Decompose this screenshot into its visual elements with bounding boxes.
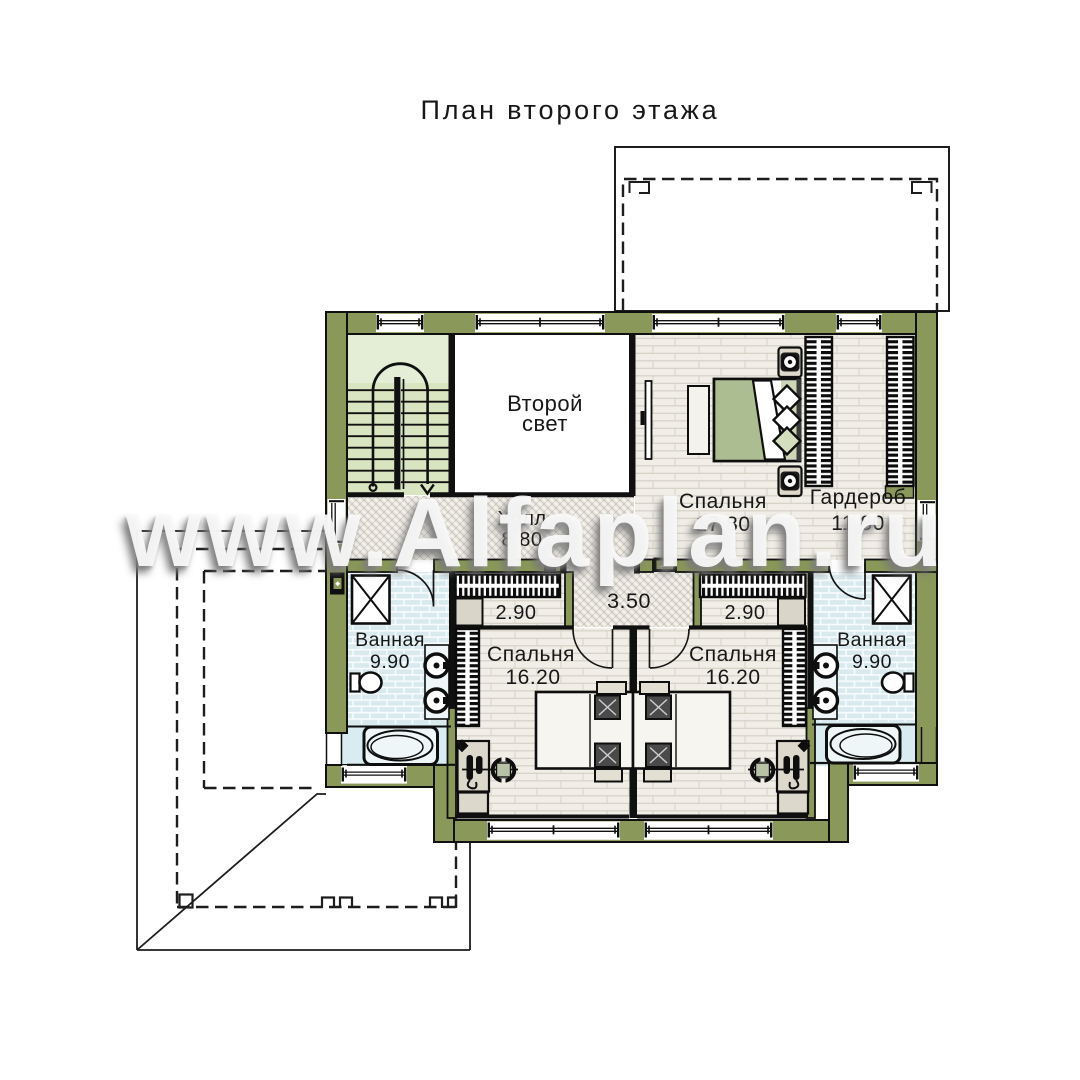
svg-text:9.90: 9.90 (370, 651, 410, 673)
svg-text:свет: свет (522, 411, 568, 436)
svg-text:2.90: 2.90 (496, 602, 537, 624)
svg-text:2.90: 2.90 (725, 602, 766, 624)
svg-text:3.50: 3.50 (607, 589, 651, 613)
svg-text:Спальня: Спальня (487, 643, 575, 666)
svg-text:Ванная: Ванная (355, 629, 425, 651)
svg-text:Ванная: Ванная (837, 629, 907, 651)
svg-text:16.20: 16.20 (705, 666, 760, 689)
svg-text:Спальня: Спальня (689, 643, 777, 666)
svg-text:16.20: 16.20 (505, 666, 560, 689)
svg-text:9.90: 9.90 (852, 651, 892, 673)
svg-text:План второго этажа: План второго этажа (421, 95, 720, 125)
